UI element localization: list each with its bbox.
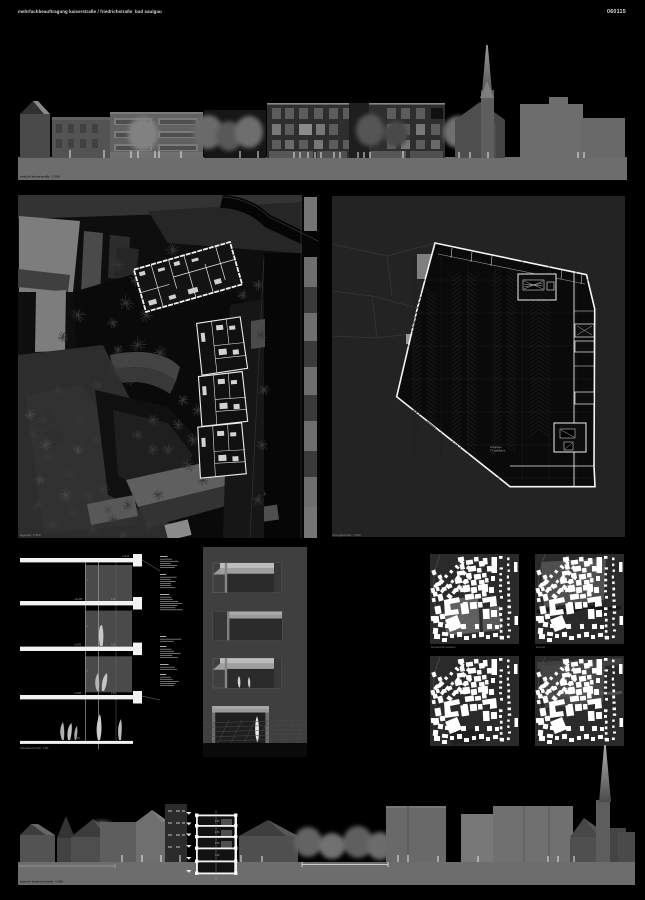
svg-text:+6.875: +6.875	[74, 645, 82, 647]
svg-text:73 stellplätze: 73 stellplätze	[490, 448, 506, 452]
svg-text:2.51: 2.51	[111, 693, 116, 695]
svg-text:ansicht friedrichstraße 1:200: ansicht friedrichstraße 1:200	[20, 880, 63, 884]
svg-text:+10.385: +10.385	[74, 599, 83, 601]
svg-text:3.20: 3.20	[215, 855, 220, 857]
svg-text:+3.385: +3.385	[74, 693, 82, 695]
svg-text:2.51: 2.51	[215, 843, 220, 845]
svg-text:2.51: 2.51	[111, 645, 116, 647]
svg-text:+13.45: +13.45	[122, 556, 130, 558]
svg-text:2.51: 2.51	[215, 821, 220, 823]
svg-text:tiefgarage: tiefgarage	[490, 445, 502, 449]
svg-text:ansicht kaiserstraße 1:200: ansicht kaiserstraße 1:200	[20, 175, 60, 179]
svg-text:2.51: 2.51	[215, 832, 220, 834]
svg-text:schwarzplan bestand: schwarzplan bestand	[431, 645, 456, 649]
svg-text:2.51: 2.51	[111, 599, 116, 601]
svg-text:konzept: konzept	[536, 645, 545, 649]
svg-text:lageplan 1:500: lageplan 1:500	[20, 533, 41, 537]
svg-text:untergeschoss 1:500: untergeschoss 1:500	[332, 533, 361, 537]
